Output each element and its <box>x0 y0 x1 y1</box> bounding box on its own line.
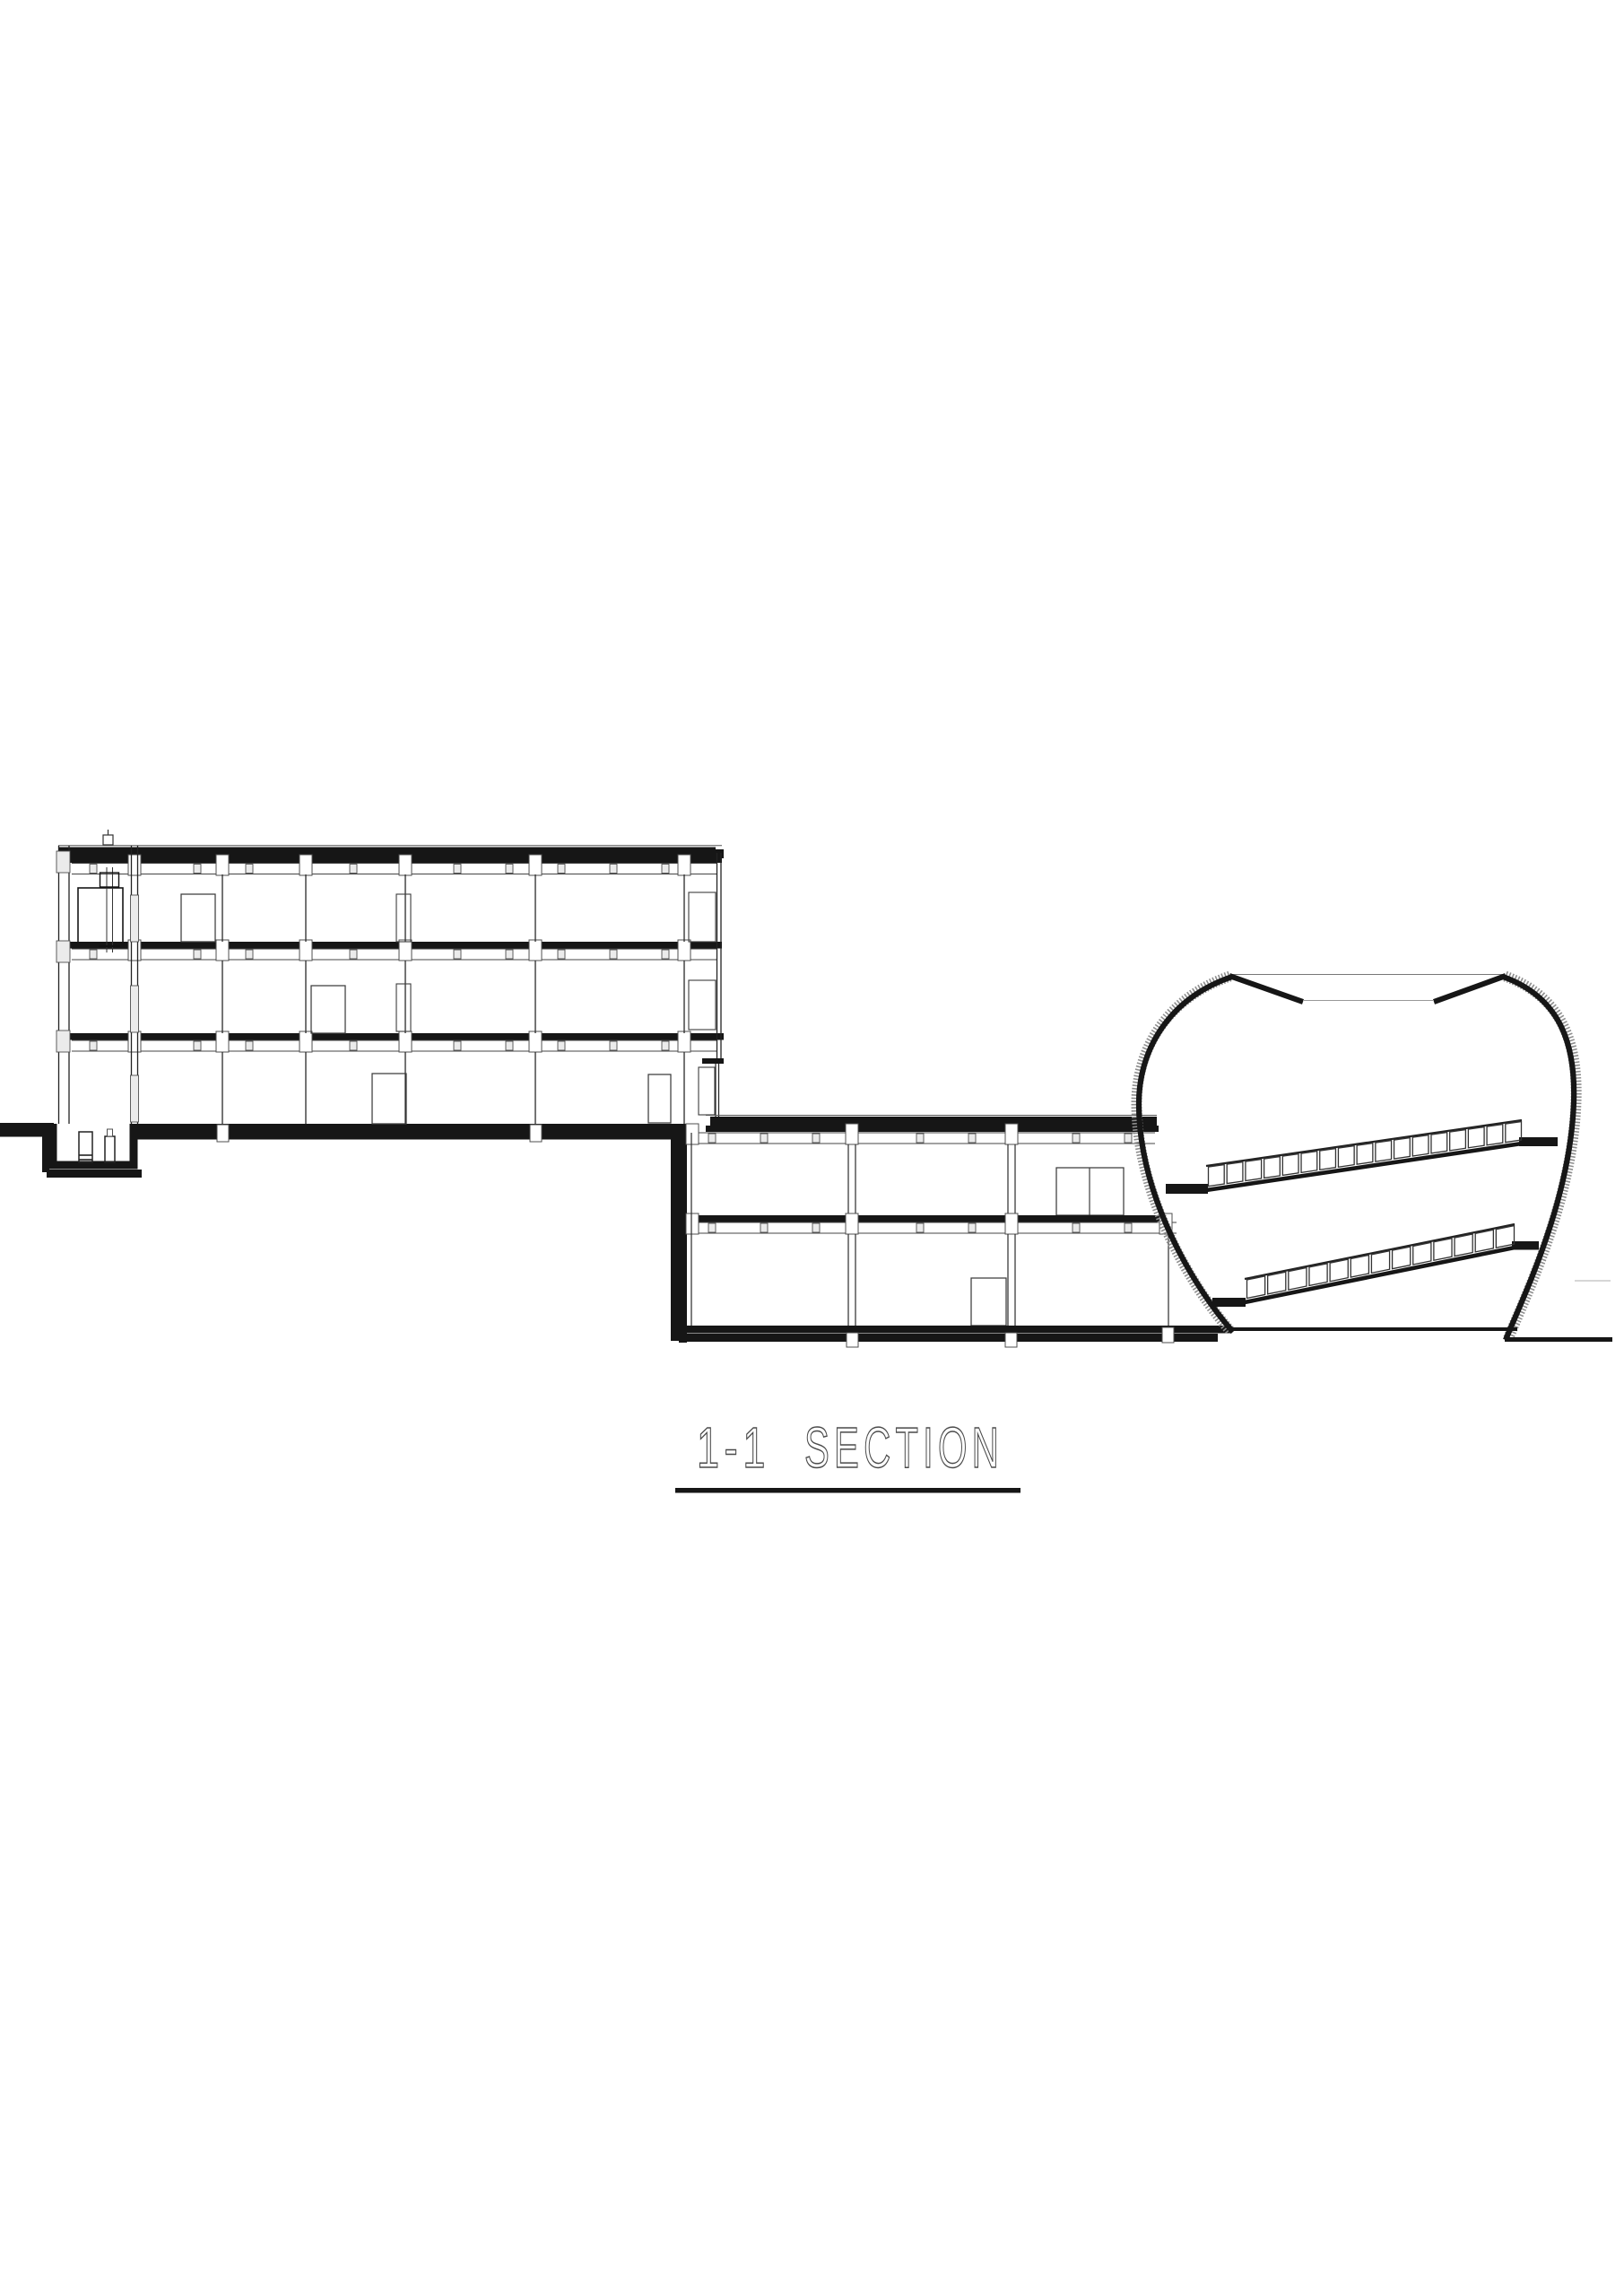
drawing-title-block: 1-1 SECTION <box>675 1415 1020 1493</box>
middle-building-section <box>680 1116 1230 1348</box>
title-number: 1-1 <box>697 1415 770 1480</box>
title-text: SECTION <box>804 1415 1003 1480</box>
left-building-section <box>56 830 724 1124</box>
drawing-sheet: 1-1 SECTION <box>0 0 1624 2296</box>
vessel-hall-section <box>1136 975 1612 1341</box>
title-underline <box>675 1488 1020 1493</box>
site-ground <box>0 1123 687 1343</box>
section-drawing: 1-1 SECTION <box>0 0 1624 2296</box>
